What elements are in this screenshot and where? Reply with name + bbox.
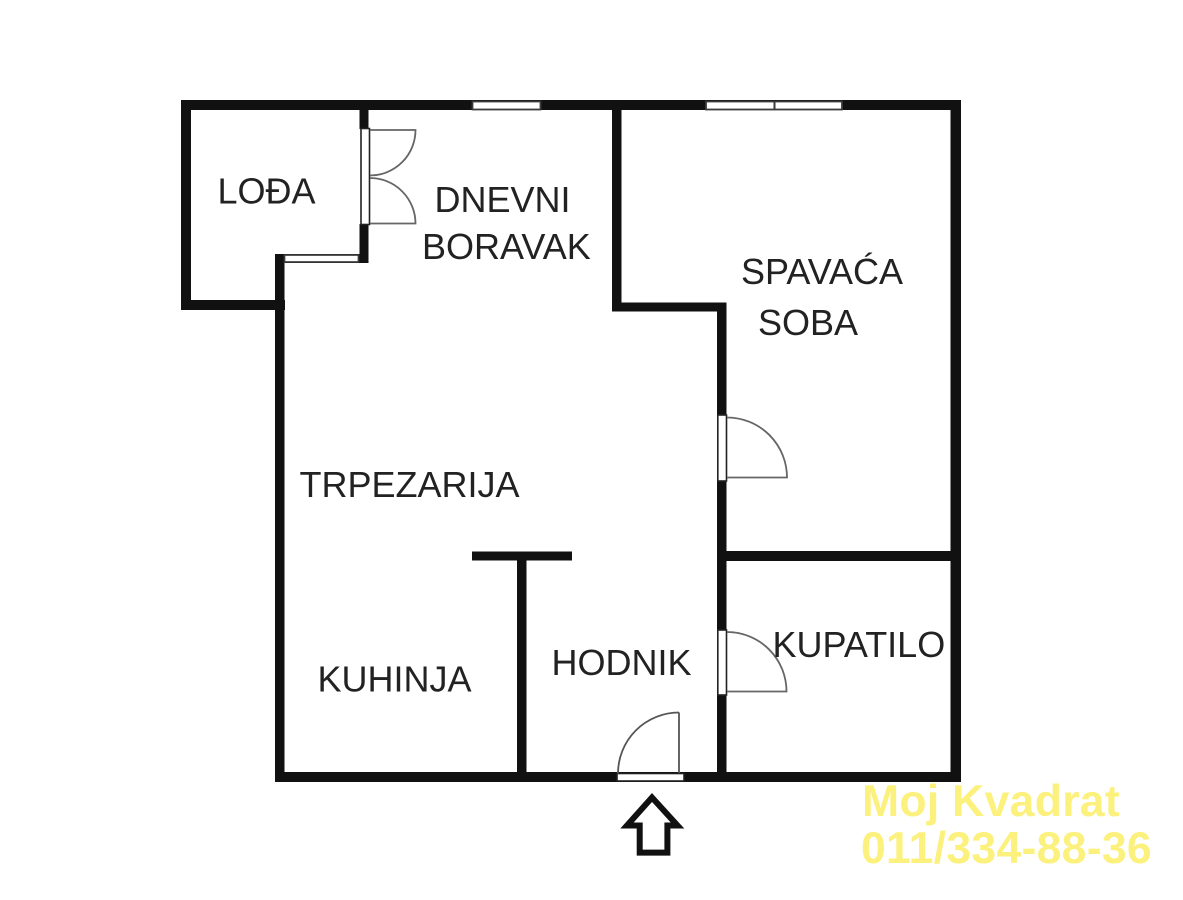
svg-text:SOBA: SOBA <box>758 302 858 343</box>
svg-text:KUHINJA: KUHINJA <box>318 659 472 700</box>
svg-text:Moj Kvadrat: Moj Kvadrat <box>862 777 1120 826</box>
svg-text:BORAVAK: BORAVAK <box>422 226 591 267</box>
svg-text:TRPEZARIJA: TRPEZARIJA <box>300 464 520 505</box>
svg-text:011/334-88-36: 011/334-88-36 <box>861 824 1152 873</box>
svg-text:DNEVNI: DNEVNI <box>435 179 571 220</box>
svg-text:HODNIK: HODNIK <box>552 642 692 683</box>
svg-text:KUPATILO: KUPATILO <box>773 624 946 665</box>
svg-text:SPAVAĆA: SPAVAĆA <box>741 251 903 292</box>
svg-text:LOĐA: LOĐA <box>218 171 316 212</box>
